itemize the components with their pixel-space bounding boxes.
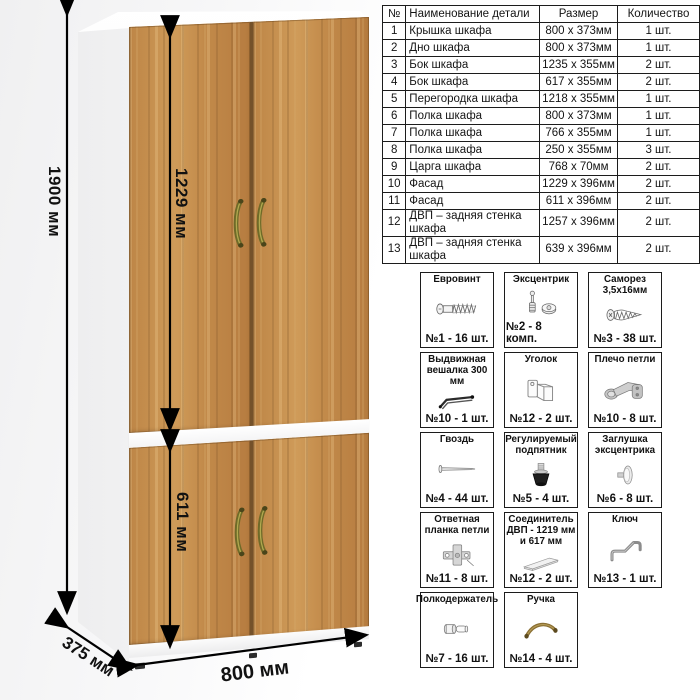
hardware-item-name: Саморез 3,5x16мм [590, 275, 660, 297]
parts-table-cell: 1 [383, 23, 406, 40]
nail-icon [422, 446, 492, 493]
parts-table-cell: 800 x 373мм [540, 40, 618, 57]
parts-table-row: 3Бок шкафа1235 x 355мм2 шт. [383, 57, 700, 74]
hardware-item-name: Эксцентрик [513, 275, 569, 286]
hardware-item-name: Выдвижная вешалка 300 мм [422, 355, 492, 388]
hardware-item: Плечо петли№10 - 8 шт. [588, 352, 662, 428]
parts-table-cell: 2 шт. [617, 57, 699, 74]
parts-table-cell: Полка шкафа [406, 142, 540, 159]
hardware-item-quantity: №2 - 8 комп. [506, 321, 576, 345]
shelf-pin-icon [422, 606, 492, 653]
parts-table-header: №Наименование деталиРазмерКоличество [383, 6, 700, 23]
parts-table-cell: Полка шкафа [406, 108, 540, 125]
wardrobe-foot [354, 642, 362, 648]
parts-table-cell: 2 шт. [617, 159, 699, 176]
hardware-grid: Евровинт№1 - 16 шт.Эксцентрик№2 - 8 комп… [420, 272, 662, 668]
parts-table-cell: 13 [383, 236, 406, 263]
parts-table-cell: 2 шт. [617, 236, 699, 263]
parts-table-cell: 800 x 373мм [540, 23, 618, 40]
upper-right-door [253, 17, 369, 428]
parts-table-cell: Бок шкафа [406, 74, 540, 91]
parts-table-cell: 5 [383, 91, 406, 108]
parts-table-cell: ДВП – задняя стенка шкафа [406, 210, 540, 237]
parts-table-cell: 250 x 355мм [540, 142, 618, 159]
hardware-item: Полкодержатель№7 - 16 шт. [420, 592, 494, 668]
lower-door-dimension-label: 611 мм [172, 492, 192, 552]
hardware-item: Евровинт№1 - 16 шт. [420, 272, 494, 348]
hardware-item: Выдвижная вешалка 300 мм№10 - 1 шт. [420, 352, 494, 428]
hardware-item-quantity: №14 - 4 шт. [510, 653, 573, 665]
parts-table-row: 10Фасад1229 x 396мм2 шт. [383, 176, 700, 193]
hardware-item-quantity: №4 - 44 шт. [426, 493, 489, 505]
parts-table-header-cell: Наименование детали [406, 6, 540, 23]
assembly-instruction-sheet: 1900 мм 1229 мм 611 мм 800 мм 375 мм №На… [0, 0, 700, 700]
parts-table-cell: 1 шт. [617, 40, 699, 57]
self-tapping-screw-icon [590, 297, 660, 333]
hex-key-icon [590, 526, 660, 573]
parts-table-cell: 611 x 396мм [540, 193, 618, 210]
cam-cover-icon [590, 457, 660, 493]
parts-table: №Наименование деталиРазмерКоличество 1Кр… [382, 5, 700, 264]
hardware-item: Заглушка эксцентрика№6 - 8 шт. [588, 432, 662, 508]
parts-table-cell: Полка шкафа [406, 125, 540, 142]
parts-table-cell: Фасад [406, 176, 540, 193]
hardware-item: Ручка№14 - 4 шт. [504, 592, 578, 668]
hardware-item-quantity: №12 - 2 шт. [510, 413, 573, 425]
parts-table-cell: 1 шт. [617, 125, 699, 142]
parts-table-cell: 1257 x 396мм [540, 210, 618, 237]
pull-out-rail-icon [422, 388, 492, 413]
parts-table-cell: 639 x 396мм [540, 236, 618, 263]
hardware-item: Ключ№13 - 1 шт. [588, 512, 662, 588]
corner-bracket-icon [506, 366, 576, 413]
parts-table-cell: 11 [383, 193, 406, 210]
parts-table-cell: 10 [383, 176, 406, 193]
upper-door-dimension-label: 1229 мм [171, 168, 191, 239]
hinge-plate-icon [422, 537, 492, 573]
parts-table-cell: 1229 x 396мм [540, 176, 618, 193]
upper-right-door-handle [255, 197, 268, 248]
hardware-item-quantity: №5 - 4 шт. [513, 493, 569, 505]
parts-table-cell: Дно шкафа [406, 40, 540, 57]
parts-table-row: 11Фасад611 x 396мм2 шт. [383, 193, 700, 210]
parts-table-cell: 7 [383, 125, 406, 142]
hardware-item-name: Соединитель ДВП - 1219 мм и 617 мм [506, 515, 576, 548]
hardware-item-quantity: №6 - 8 шт. [597, 493, 653, 505]
lower-right-door-handle [256, 505, 269, 556]
cam-lock-icon [506, 286, 576, 321]
parts-table-cell: 9 [383, 159, 406, 176]
upper-left-door-handle [232, 198, 245, 249]
parts-table-cell: 1 шт. [617, 23, 699, 40]
parts-table-row: 1Крышка шкафа800 x 373мм1 шт. [383, 23, 700, 40]
parts-table-cell: 766 x 355мм [540, 125, 618, 142]
hardware-item-name: Полкодержатель [416, 595, 498, 606]
hardware-item: Гвоздь№4 - 44 шт. [420, 432, 494, 508]
hardware-item-name: Ответная планка петли [422, 515, 492, 537]
parts-table-row: 2Дно шкафа800 x 373мм1 шт. [383, 40, 700, 57]
parts-table-cell: Крышка шкафа [406, 23, 540, 40]
wardrobe-upper-doors [129, 17, 369, 433]
parts-table-cell: 2 шт. [617, 193, 699, 210]
parts-table-cell: 1 шт. [617, 91, 699, 108]
parts-table-cell: 1218 x 355мм [540, 91, 618, 108]
hardware-item-quantity: №7 - 16 шт. [426, 653, 489, 665]
wardrobe-lower-doors [129, 433, 369, 645]
parts-table-row: 5Перегородка шкафа1218 x 355мм1 шт. [383, 91, 700, 108]
parts-table-cell: Перегородка шкафа [406, 91, 540, 108]
hardware-item-quantity: №3 - 38 шт. [594, 333, 657, 345]
hardware-item-name: Заглушка эксцентрика [590, 435, 660, 457]
euro-screw-icon [422, 286, 492, 333]
parts-table-cell: Бок шкафа [406, 57, 540, 74]
parts-table-cell: Фасад [406, 193, 540, 210]
parts-table-row: 12ДВП – задняя стенка шкафа1257 x 396мм2… [383, 210, 700, 237]
parts-table-header-cell: Количество [617, 6, 699, 23]
parts-table-cell: 1 шт. [617, 108, 699, 125]
parts-table-cell: 6 [383, 108, 406, 125]
parts-table-row: 13ДВП – задняя стенка шкафа639 x 396мм2 … [383, 236, 700, 263]
parts-table-cell: 2 шт. [617, 176, 699, 193]
wardrobe-foot [249, 653, 257, 659]
hardware-item-name: Плечо петли [595, 355, 656, 366]
hardware-item-quantity: №12 - 2 шт. [510, 573, 573, 585]
parts-table-cell: 768 x 70мм [540, 159, 618, 176]
hardware-item: Соединитель ДВП - 1219 мм и 617 мм№12 - … [504, 512, 578, 588]
height-dimension-label: 1900 мм [44, 166, 64, 237]
hardware-item-quantity: №11 - 8 шт. [426, 573, 488, 585]
parts-table-cell: 2 шт. [617, 210, 699, 237]
hinge-arm-icon [590, 366, 660, 413]
parts-table-cell: 800 x 373мм [540, 108, 618, 125]
parts-table-cell: 2 [383, 40, 406, 57]
hardware-item-quantity: №1 - 16 шт. [426, 333, 489, 345]
hardware-item: Саморез 3,5x16мм№3 - 38 шт. [588, 272, 662, 348]
hardware-item: Уголок№12 - 2 шт. [504, 352, 578, 428]
hardware-item: Эксцентрик№2 - 8 комп. [504, 272, 578, 348]
hardware-item-quantity: №13 - 1 шт. [594, 573, 657, 585]
parts-table-cell: 12 [383, 210, 406, 237]
parts-table-header-cell: № [383, 6, 406, 23]
hardware-item-name: Гвоздь [440, 435, 474, 446]
parts-table-row: 7Полка шкафа766 x 355мм1 шт. [383, 125, 700, 142]
parts-table-cell: 3 шт. [617, 142, 699, 159]
adjustable-foot-icon [506, 457, 576, 493]
parts-table-cell: 617 x 355мм [540, 74, 618, 91]
hardware-item-name: Регулируемый подпятник [505, 435, 577, 457]
hardware-item-name: Ручка [527, 595, 555, 606]
parts-table-cell: 1235 x 355мм [540, 57, 618, 74]
hardware-item-quantity: №10 - 8 шт. [594, 413, 657, 425]
parts-table-row: 8Полка шкафа250 x 355мм3 шт. [383, 142, 700, 159]
parts-table-row: 6Полка шкафа800 x 373мм1 шт. [383, 108, 700, 125]
parts-table-header-cell: Размер [540, 6, 618, 23]
parts-table-body: 1Крышка шкафа800 x 373мм1 шт.2Дно шкафа8… [383, 23, 700, 264]
lower-left-door-handle [233, 507, 246, 558]
hardware-item: Регулируемый подпятник№5 - 4 шт. [504, 432, 578, 508]
parts-table-cell: Царга шкафа [406, 159, 540, 176]
hardware-item: Ответная планка петли№11 - 8 шт. [420, 512, 494, 588]
lower-right-door [253, 433, 369, 637]
parts-table-row: 4Бок шкафа617 x 355мм2 шт. [383, 74, 700, 91]
parts-table-cell: 3 [383, 57, 406, 74]
parts-table-cell: ДВП – задняя стенка шкафа [406, 236, 540, 263]
handle-icon [506, 606, 576, 653]
wardrobe-foot [135, 663, 145, 670]
hardware-item-name: Уголок [525, 355, 557, 366]
hardware-item-quantity: №10 - 1 шт. [426, 413, 489, 425]
parts-table-cell: 4 [383, 74, 406, 91]
parts-table-cell: 2 шт. [617, 74, 699, 91]
hardware-item-name: Евровинт [433, 275, 480, 286]
hdf-connector-icon [506, 548, 576, 573]
parts-table-cell: 8 [383, 142, 406, 159]
parts-table-row: 9Царга шкафа768 x 70мм2 шт. [383, 159, 700, 176]
hardware-item-name: Ключ [612, 515, 638, 526]
